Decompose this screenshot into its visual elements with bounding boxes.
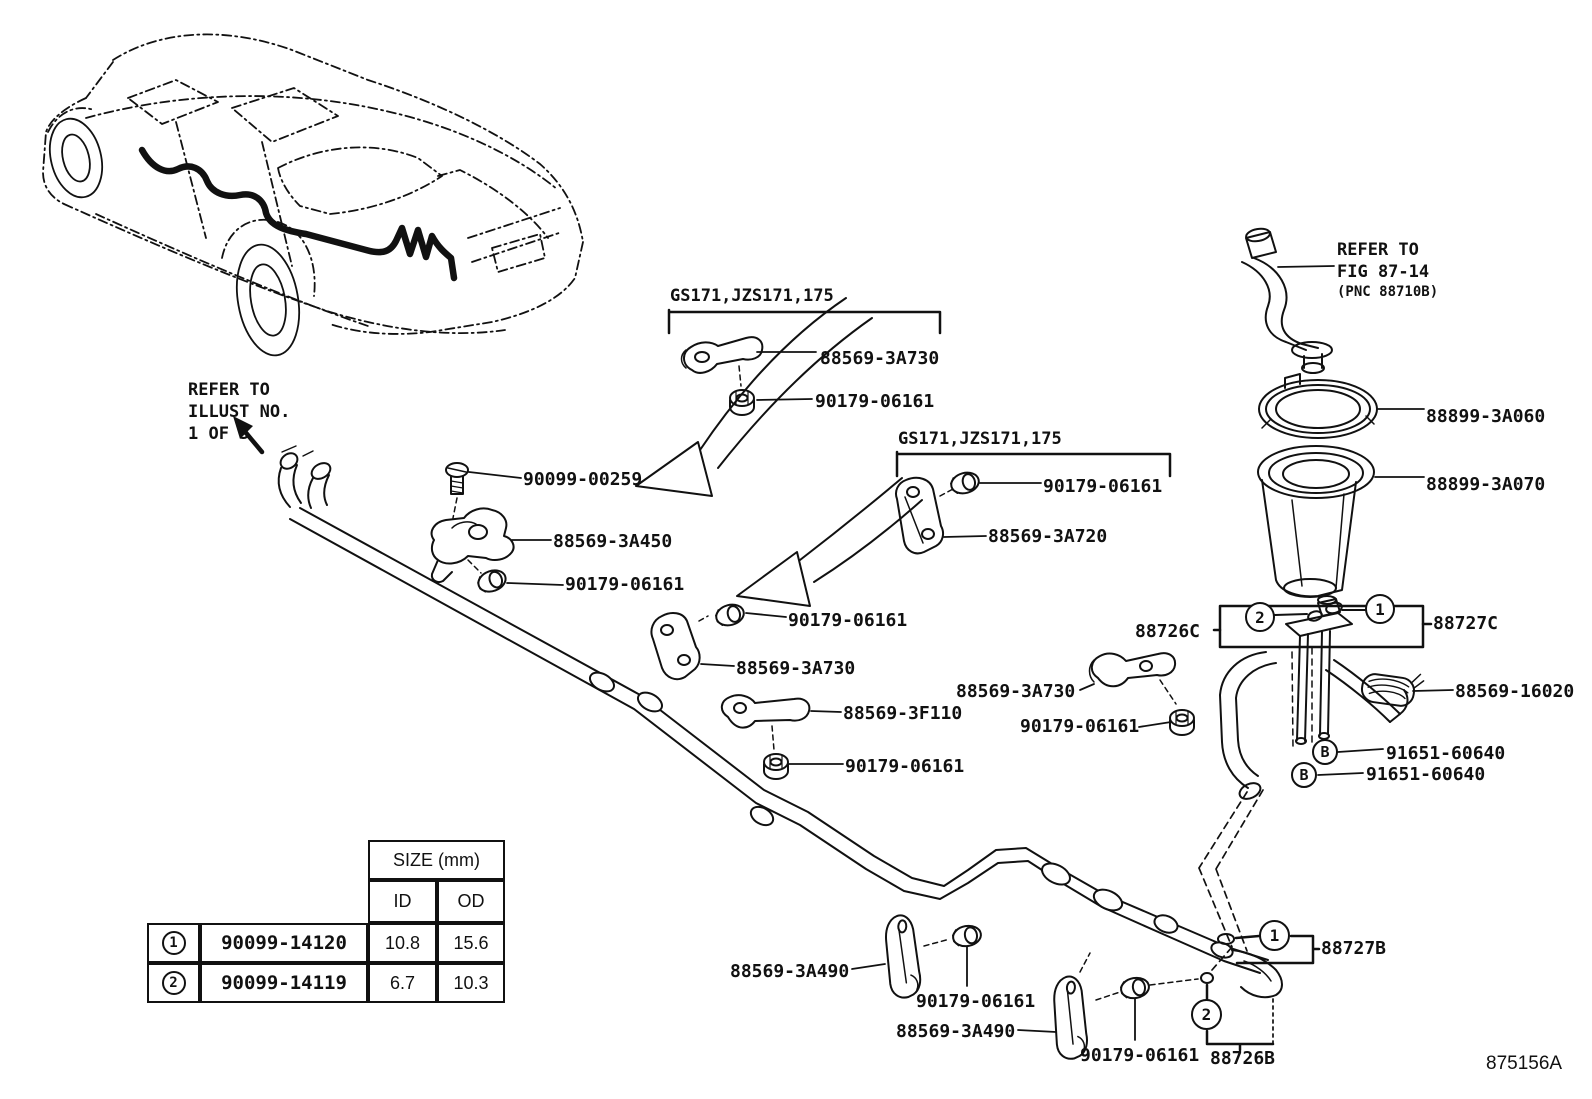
illust-note-line3: 1 OF 3 xyxy=(188,424,290,446)
size-table-col-od: OD xyxy=(437,880,505,923)
plate-88899-3A060 xyxy=(1259,374,1377,438)
part-label-90179-06161-5[interactable]: 90179-06161 xyxy=(845,758,964,776)
ref-circle-b-1[interactable]: B xyxy=(1312,739,1338,765)
fig-note-line3: (PNC 88710B) xyxy=(1337,284,1438,302)
part-label-88569-3A490-1[interactable]: 88569-3A490 xyxy=(730,963,849,981)
part-label-88569-16020[interactable]: 88569-16020 xyxy=(1455,683,1574,701)
clamp-88569-3A730-mid xyxy=(651,613,708,679)
size-table-col-id: ID xyxy=(368,880,437,923)
grommet-90179-06161-a xyxy=(475,567,508,595)
size-table: SIZE (mm) ID OD 1 90099-14120 10.8 15.6 … xyxy=(147,840,507,1005)
parts-diagram-page: REFER TO ILLUST NO. 1 OF 3 REFER TO FIG … xyxy=(0,0,1592,1099)
screw-90099-00259 xyxy=(446,463,468,518)
part-label-90179-06161-3[interactable]: 90179-06161 xyxy=(1043,478,1162,496)
ref-circle-2-top[interactable]: 2 xyxy=(1245,602,1275,632)
size-table-row1-id: 10.8 xyxy=(368,923,437,963)
illust-note-line2: ILLUST NO. xyxy=(188,402,290,424)
part-label-90179-06161-8[interactable]: 90179-06161 xyxy=(1080,1047,1199,1065)
part-label-90179-06161-6[interactable]: 90179-06161 xyxy=(1020,718,1139,736)
size-table-row1-od: 15.6 xyxy=(437,923,505,963)
size-table-title: SIZE (mm) xyxy=(368,840,505,880)
group-label-1: GS171,JZS171,175 xyxy=(670,288,834,305)
group-bracket-2 xyxy=(897,452,1170,476)
illust-note-line1: REFER TO xyxy=(188,380,290,402)
size-table-row2-part[interactable]: 90099-14119 xyxy=(200,963,368,1003)
part-label-88727B[interactable]: 88727B xyxy=(1321,940,1386,958)
ref-circle-b-2[interactable]: B xyxy=(1291,762,1317,788)
strap-88569-3A490-1 xyxy=(882,914,925,998)
ref-circle-1-top[interactable]: 1 xyxy=(1365,594,1395,624)
funnel-88899-3A070 xyxy=(1258,446,1374,597)
clamp-88569-3A730-top xyxy=(682,337,763,386)
clamp-88569-3A730-right xyxy=(1090,653,1177,704)
fig-87-14-hose xyxy=(1242,227,1332,373)
size-table-row1-ref-cell: 1 xyxy=(147,923,200,963)
size-table-row1-part[interactable]: 90099-14120 xyxy=(200,923,368,963)
nut-90179-06161-d xyxy=(764,754,788,779)
part-label-88569-3A450[interactable]: 88569-3A450 xyxy=(553,533,672,551)
nut-90179-06161-f xyxy=(951,924,982,949)
nut-90179-06161-a xyxy=(730,390,754,415)
part-label-88569-3A490-2[interactable]: 88569-3A490 xyxy=(896,1023,1015,1041)
ref-circle-2-bottom[interactable]: 2 xyxy=(1191,999,1222,1030)
part-label-88727C[interactable]: 88727C xyxy=(1433,615,1498,633)
part-label-88899-3A070[interactable]: 88899-3A070 xyxy=(1426,476,1545,494)
pointer-arrow-2 xyxy=(737,478,922,606)
clamp-88569-3F110 xyxy=(722,695,810,750)
fig-reference-note: REFER TO FIG 87-14 (PNC 88710B) xyxy=(1337,240,1438,301)
part-label-90099-00259[interactable]: 90099-00259 xyxy=(523,471,642,489)
part-label-90179-06161-1[interactable]: 90179-06161 xyxy=(815,393,934,411)
grommet-90179-06161-c xyxy=(714,602,746,629)
part-label-88569-3A730-3[interactable]: 88569-3A730 xyxy=(956,683,1075,701)
part-label-90179-06161-4[interactable]: 90179-06161 xyxy=(788,612,907,630)
part-label-91651-60640-2[interactable]: 91651-60640 xyxy=(1366,766,1485,784)
ref-circle-1-bottom[interactable]: 1 xyxy=(1259,920,1290,951)
fig-note-line2: FIG 87-14 xyxy=(1337,262,1438,284)
grommet-90179-06161-b xyxy=(949,470,981,497)
part-label-88569-3F110[interactable]: 88569-3F110 xyxy=(843,705,962,723)
leader-lines xyxy=(469,266,1453,1040)
illust-reference-note: REFER TO ILLUST NO. 1 OF 3 xyxy=(188,380,290,445)
size-table-row2-od: 10.3 xyxy=(437,963,505,1003)
nut-90179-06161-g xyxy=(1119,976,1150,1001)
part-label-91651-60640-1[interactable]: 91651-60640 xyxy=(1386,745,1505,763)
fig-note-line1: REFER TO xyxy=(1337,240,1438,262)
nut-90179-06161-e xyxy=(1170,710,1194,735)
figure-code: 875156A xyxy=(1486,1053,1562,1075)
size-table-row2-id: 6.7 xyxy=(368,963,437,1003)
group-label-2: GS171,JZS171,175 xyxy=(898,431,1062,448)
size-table-row2-ref-cell: 2 xyxy=(147,963,200,1003)
part-label-88726C[interactable]: 88726C xyxy=(1135,623,1200,641)
part-label-88569-3A720[interactable]: 88569-3A720 xyxy=(988,528,1107,546)
part-label-88899-3A060[interactable]: 88899-3A060 xyxy=(1426,408,1545,426)
part-label-90179-06161-7[interactable]: 90179-06161 xyxy=(916,993,1035,1011)
size-table-row1-ref: 1 xyxy=(162,931,186,955)
size-table-row2-ref: 2 xyxy=(162,971,186,995)
part-label-88569-3A730-2[interactable]: 88569-3A730 xyxy=(736,660,855,678)
part-label-88726B[interactable]: 88726B xyxy=(1210,1050,1275,1068)
part-label-88569-3A730-1[interactable]: 88569-3A730 xyxy=(820,350,939,368)
part-label-90179-06161-2[interactable]: 90179-06161 xyxy=(565,576,684,594)
car-sketch xyxy=(42,34,583,360)
